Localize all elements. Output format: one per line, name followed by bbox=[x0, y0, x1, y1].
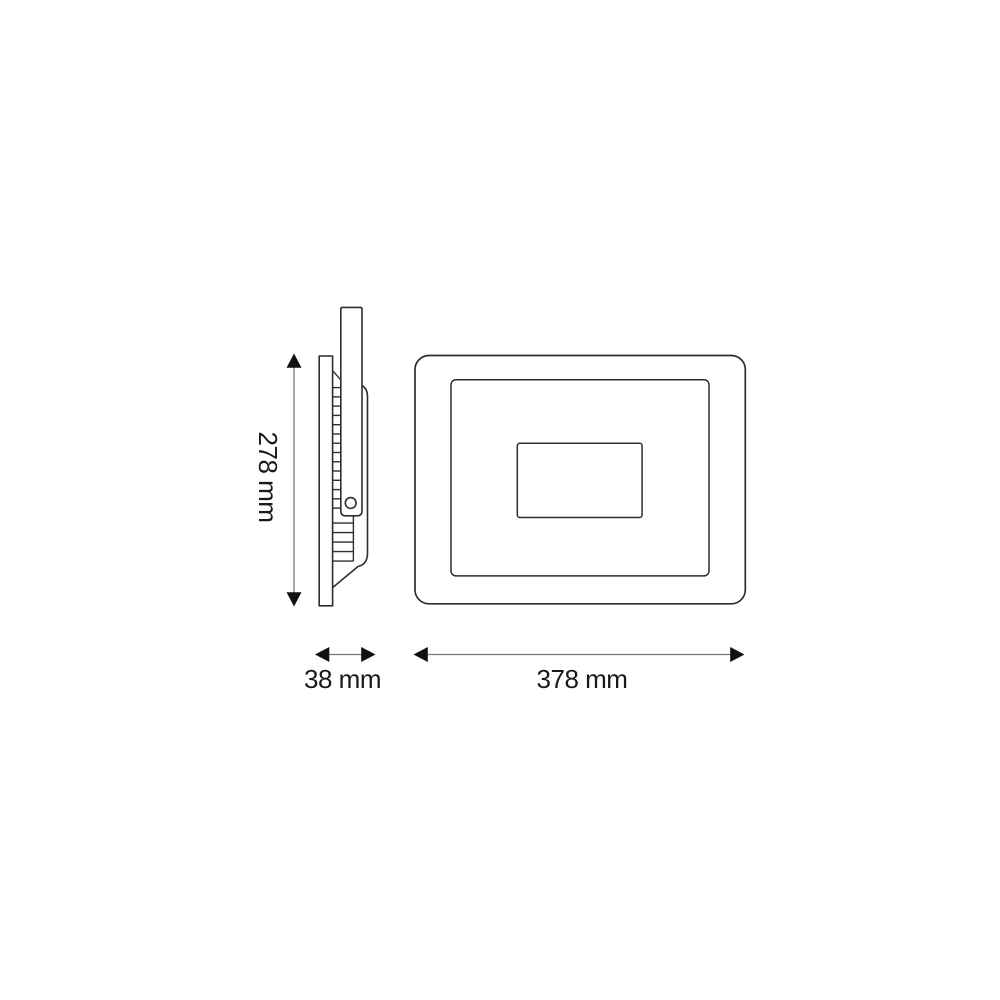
dimension-drawing-canvas: 278 mm 38 mm 378 mm bbox=[0, 0, 1000, 1000]
front-driver-box bbox=[517, 443, 642, 517]
front-view bbox=[415, 356, 745, 604]
side-heatsink-fins bbox=[333, 371, 341, 508]
height-dimension-label: 278 mm bbox=[255, 431, 281, 522]
side-view bbox=[319, 307, 367, 605]
arrowhead-up-icon bbox=[287, 354, 302, 368]
floodlight-dimension-drawing bbox=[0, 0, 1000, 1000]
arrowhead-right-icon bbox=[730, 647, 744, 662]
arrowhead-right-icon bbox=[361, 647, 375, 662]
depth-dimension-arrow bbox=[315, 647, 376, 662]
width-dimension-arrow bbox=[414, 647, 745, 662]
bracket-pivot-screw-icon bbox=[345, 498, 356, 509]
arrowhead-left-icon bbox=[315, 647, 329, 662]
width-dimension-label: 378 mm bbox=[537, 666, 628, 692]
side-mounting-bracket bbox=[341, 307, 362, 515]
front-inner-frame bbox=[451, 380, 709, 576]
side-front-slab bbox=[319, 356, 332, 606]
height-dimension-arrow bbox=[287, 354, 302, 607]
arrowhead-left-icon bbox=[414, 647, 428, 662]
depth-dimension-label: 38 mm bbox=[304, 666, 381, 692]
arrowhead-down-icon bbox=[287, 592, 302, 606]
front-outer-frame bbox=[415, 356, 745, 604]
